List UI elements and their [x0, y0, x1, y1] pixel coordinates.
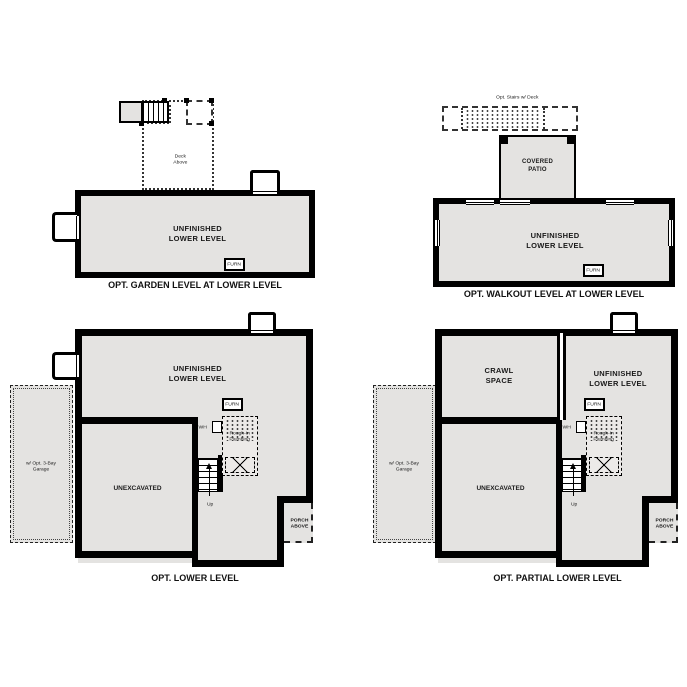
stairs-up-arrow: [573, 468, 574, 496]
unexcavated-label: UNEXCAVATED: [448, 483, 553, 495]
wall: [556, 417, 562, 567]
porch-label: PORCH ABOVE: [655, 517, 673, 530]
wall: [642, 496, 649, 567]
wall: [435, 329, 442, 558]
partial-lower-level-plan: w/ Opt. 3-Bay Garage PORCH ABOVE Up: [0, 0, 687, 687]
plan-caption: OPT. PARTIAL LOWER LEVEL: [445, 572, 670, 584]
wall: [435, 417, 562, 424]
wall: [671, 329, 678, 503]
stairs-up-label: Up: [571, 501, 577, 507]
furnace: FURN: [584, 398, 605, 411]
floorplan-sheet: Deck Above UNFINISHED LOWER LEVEL FURN O…: [0, 0, 687, 687]
wall: [435, 551, 562, 558]
crawl-space-label: CRAWL SPACE: [453, 364, 545, 388]
window: [613, 330, 635, 335]
window-well: [610, 312, 638, 332]
room-label: UNFINISHED LOWER LEVEL: [565, 367, 671, 391]
shower-rough-in: [589, 457, 619, 473]
water-heater-label: WH: [563, 424, 571, 430]
rough-in-label: Rough-In Plumbing: [594, 430, 615, 443]
furnace-label: FURN: [588, 401, 602, 407]
rough-in-plumbing-area: [586, 416, 622, 476]
wall: [556, 560, 649, 567]
garage-label: w/ Opt. 3-Bay Garage: [384, 460, 425, 473]
